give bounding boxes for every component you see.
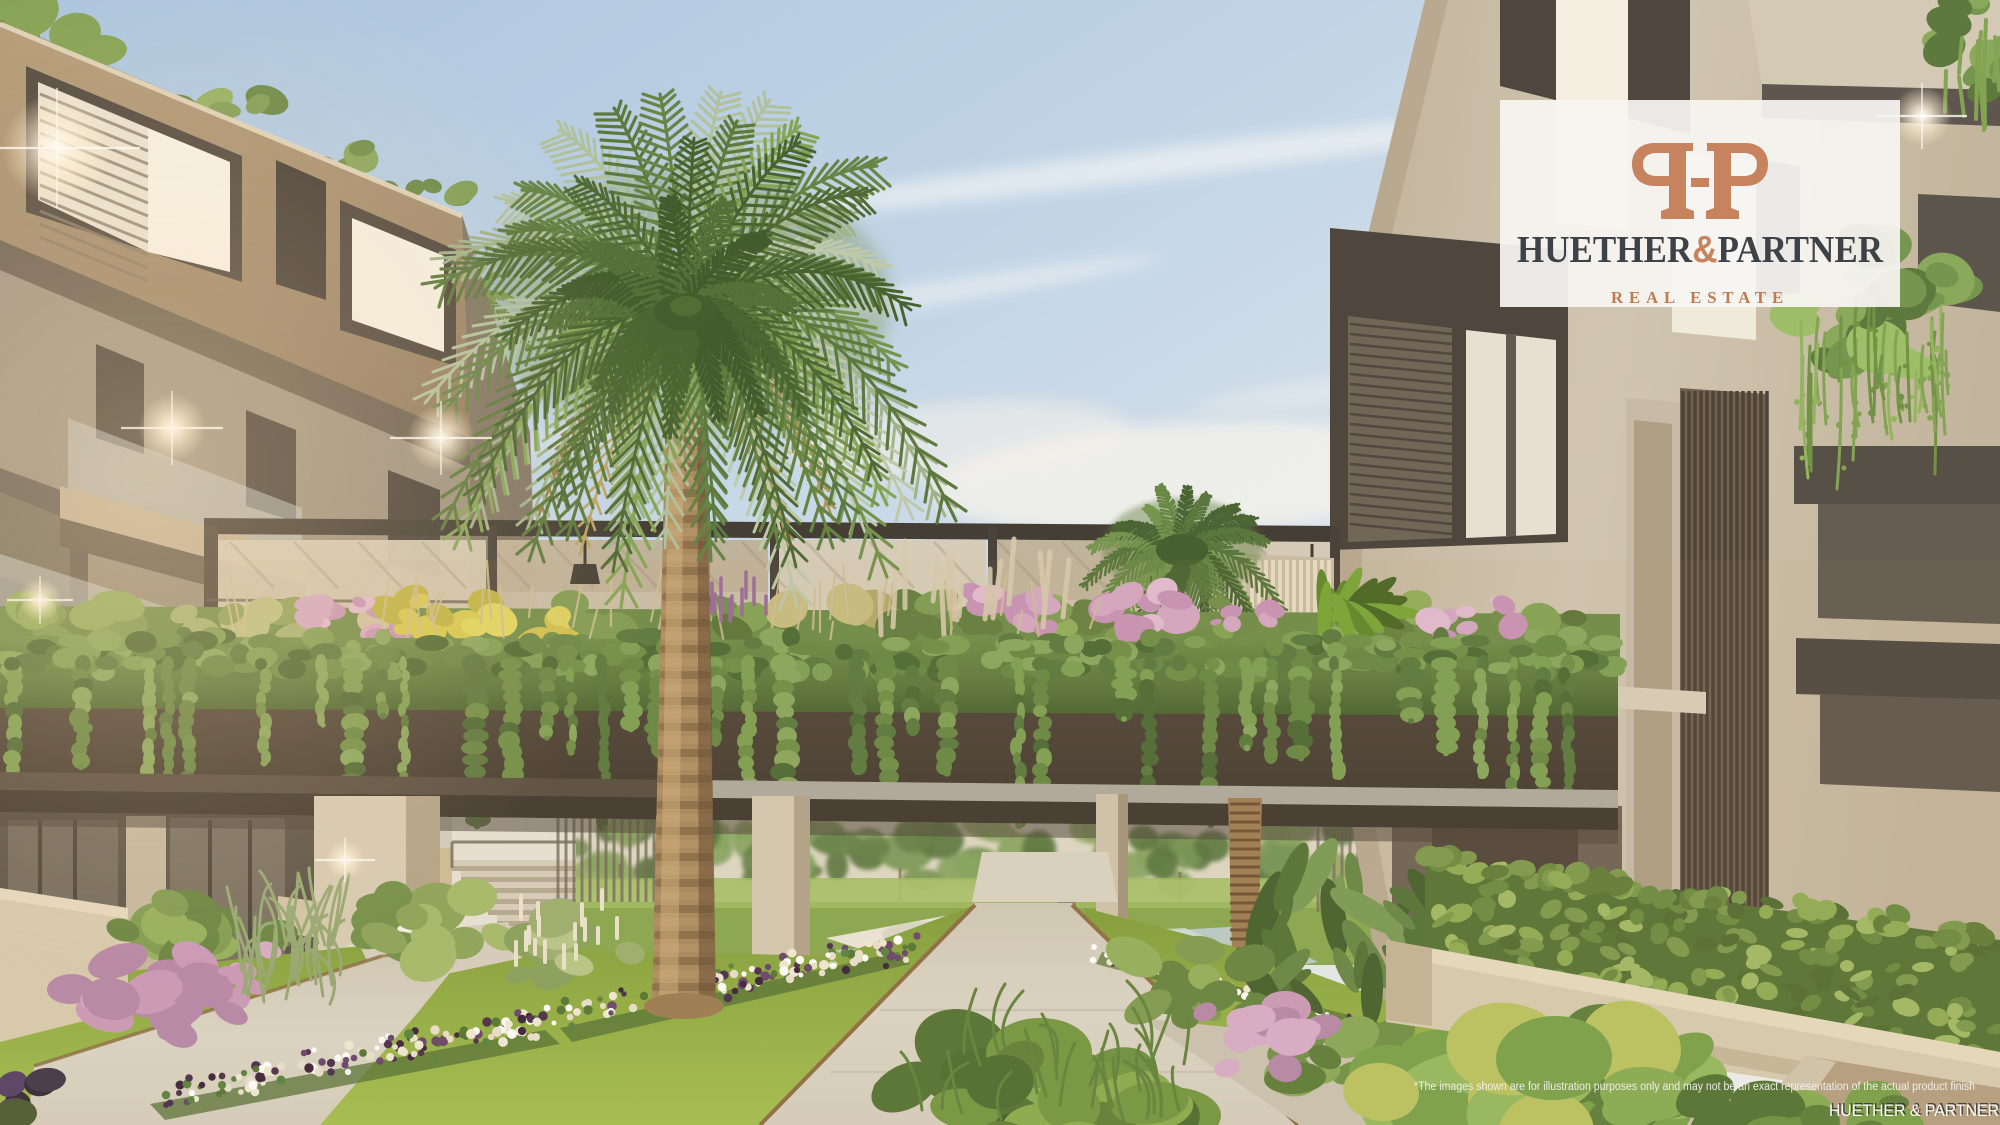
- svg-text:*The images shown are for illu: *The images shown are for illustration p…: [1414, 1081, 1975, 1093]
- svg-text:HUETHER & PARTNER: HUETHER & PARTNER: [1829, 1102, 1999, 1120]
- svg-text:REAL ESTATE: REAL ESTATE: [1611, 288, 1789, 307]
- svg-text:HUETHER&PARTNER: HUETHER&PARTNER: [1517, 229, 1884, 271]
